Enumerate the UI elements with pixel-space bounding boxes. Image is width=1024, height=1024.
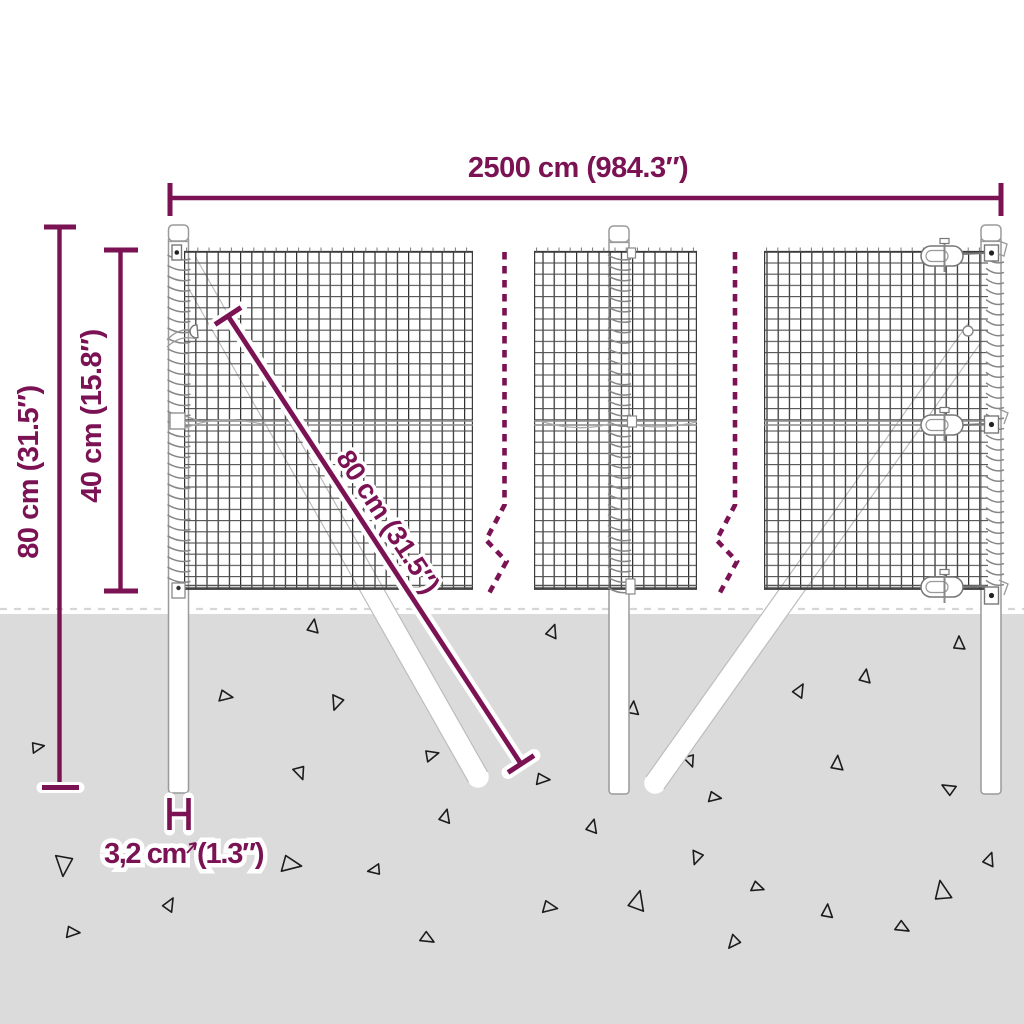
svg-text:80 cm (31.5″): 80 cm (31.5″) (13, 385, 45, 558)
svg-text:(1.3″): (1.3″) (197, 838, 264, 870)
svg-text:3,2 cm: 3,2 cm (104, 838, 186, 870)
svg-text:40 cm (15.8″): 40 cm (15.8″) (76, 329, 108, 502)
svg-text:2500 cm (984.3″): 2500 cm (984.3″) (468, 152, 688, 184)
